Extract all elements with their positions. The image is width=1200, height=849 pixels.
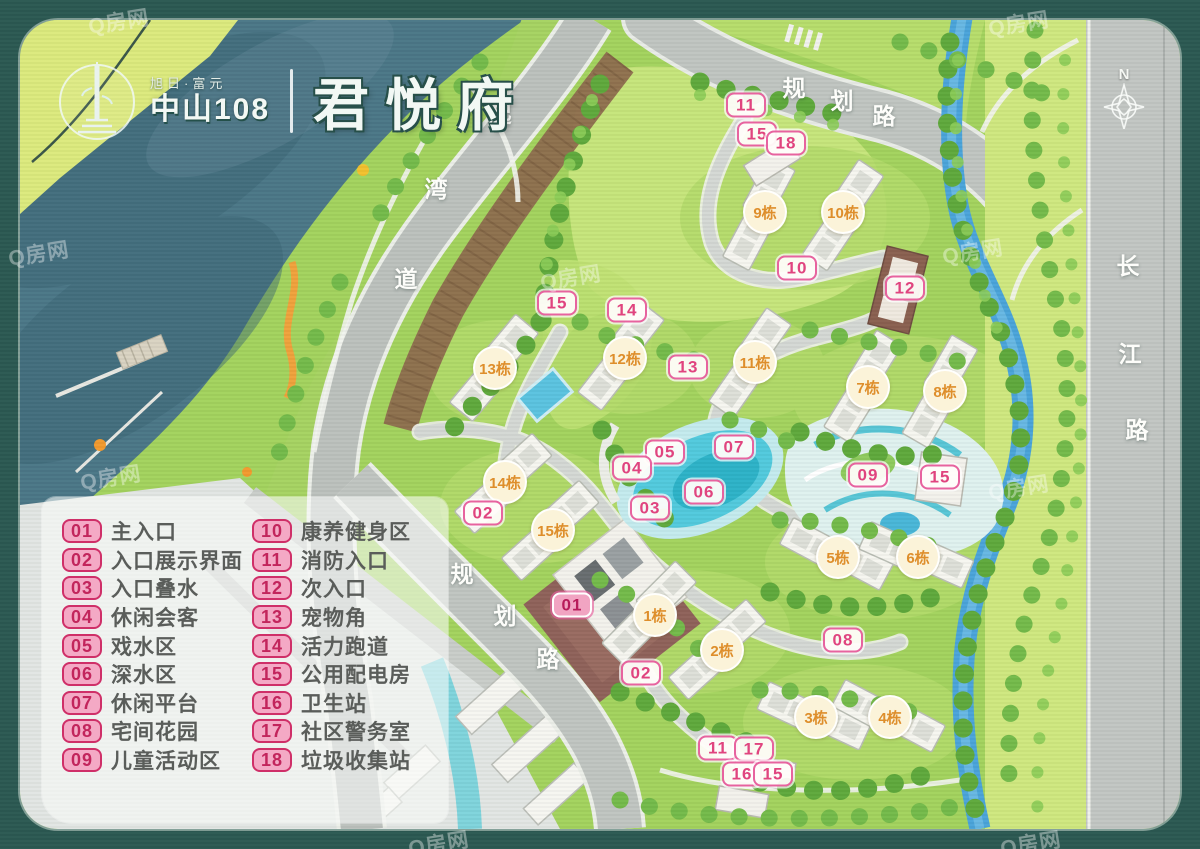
legend-number-badge: 04 [62,605,102,629]
legend-number-badge: 11 [252,548,292,572]
legend-label: 公用配电房 [301,659,411,689]
legend-number-badge: 01 [62,519,102,543]
map-marker-02[interactable]: 02 [621,661,661,686]
legend-item-01: 01主入口 [62,517,252,546]
road-label-起湾道: 道 [395,260,418,294]
building-label-3栋[interactable]: 3栋 [794,695,838,739]
legend-number-badge: 12 [252,576,292,600]
road-label-规划路(北): 划 [831,82,854,116]
map-marker-02[interactable]: 02 [463,501,503,526]
watermark: Q房网 [998,823,1063,849]
map-marker-10[interactable]: 10 [777,256,817,281]
legend-number-badge: 16 [252,691,292,715]
legend-label: 入口展示界面 [111,545,243,575]
legend-label: 康养健身区 [301,516,411,546]
building-label-12栋[interactable]: 12栋 [603,336,647,380]
legend-item-14: 14活力跑道 [252,631,442,660]
brand-emblem-icon [56,58,138,144]
map-marker-06[interactable]: 06 [684,480,724,505]
map-marker-11[interactable]: 11 [726,93,766,118]
legend-item-12: 12次入口 [252,574,442,603]
legend-number-badge: 10 [252,519,292,543]
building-label-2栋[interactable]: 2栋 [700,628,744,672]
legend-label: 戏水区 [111,631,177,661]
legend-item-15: 15公用配电房 [252,660,442,689]
building-label-6栋[interactable]: 6栋 [896,535,940,579]
legend-item-11: 11消防入口 [252,546,442,575]
road-label-长江路: 路 [1126,411,1149,445]
compass-icon [1099,83,1149,129]
watermark: Q房网 [78,457,143,496]
map-marker-01[interactable]: 01 [552,593,592,618]
legend-item-08: 08宅间花园 [62,717,252,746]
building-label-11栋[interactable]: 11栋 [733,340,777,384]
road-label-起湾道: 湾 [425,170,448,204]
legend-label: 次入口 [301,573,367,603]
project-name: 君悦府 [313,61,529,142]
map-marker-08[interactable]: 08 [823,628,863,653]
watermark: Q房网 [986,467,1051,506]
road-label-规划路(北): 路 [873,97,896,131]
legend-label: 卫生站 [301,688,367,718]
brand-logo: 旭日·富元 中山108 君悦府 [56,58,529,144]
legend-number-badge: 07 [62,691,102,715]
building-label-15栋[interactable]: 15栋 [531,508,575,552]
map-marker-11[interactable]: 11 [698,736,738,761]
legend-item-13: 13宠物角 [252,603,442,632]
legend-item-05: 05戏水区 [62,631,252,660]
building-label-7栋[interactable]: 7栋 [846,365,890,409]
watermark: Q房网 [538,257,603,296]
map-marker-15[interactable]: 15 [753,762,793,787]
legend-number-badge: 06 [62,662,102,686]
legend-label: 社区警务室 [301,716,411,746]
building-label-9栋[interactable]: 9栋 [743,190,787,234]
building-label-14栋[interactable]: 14栋 [483,460,527,504]
legend-label: 垃圾收集站 [301,745,411,775]
map-marker-09[interactable]: 09 [848,463,888,488]
map-marker-13[interactable]: 13 [668,355,708,380]
road-label-规划路(西): 划 [494,597,517,631]
legend-number-badge: 17 [252,719,292,743]
legend-item-02: 02入口展示界面 [62,546,252,575]
road-label-规划路(北): 规 [783,69,806,103]
legend-label: 儿童活动区 [111,745,221,775]
building-label-13栋[interactable]: 13栋 [473,346,517,390]
legend-item-06: 06深水区 [62,660,252,689]
legend-number-badge: 02 [62,548,102,572]
north-indicator: N [1099,66,1149,134]
legend-number-badge: 15 [252,662,292,686]
site-plan-screenshot: 旭日·富元 中山108 君悦府 N 01主入口02入口展示界面03入口叠水04休… [0,0,1200,849]
legend-item-10: 10康养健身区 [252,517,442,546]
map-marker-07[interactable]: 07 [714,435,754,460]
legend-item-09: 09儿童活动区 [62,746,252,775]
legend-label: 活力跑道 [301,631,389,661]
legend-item-18: 18垃圾收集站 [252,746,442,775]
legend-number-badge: 09 [62,748,102,772]
legend-item-03: 03入口叠水 [62,574,252,603]
map-marker-12[interactable]: 12 [885,276,925,301]
legend-label: 入口叠水 [111,573,199,603]
map-overlay: 旭日·富元 中山108 君悦府 N 01主入口02入口展示界面03入口叠水04休… [0,0,1200,849]
map-marker-17[interactable]: 17 [734,737,774,762]
watermark: Q房网 [6,233,71,272]
building-label-1栋[interactable]: 1栋 [633,593,677,637]
building-label-8栋[interactable]: 8栋 [923,369,967,413]
road-label-长江路: 长 [1117,247,1140,281]
legend-number-badge: 05 [62,634,102,658]
legend-number-badge: 08 [62,719,102,743]
north-label: N [1099,66,1149,83]
legend-item-07: 07休闲平台 [62,689,252,718]
legend-panel: 01主入口02入口展示界面03入口叠水04休闲会客05戏水区06深水区07休闲平… [42,497,448,823]
legend-column-2: 10康养健身区11消防入口12次入口13宠物角14活力跑道15公用配电房16卫生… [252,517,442,813]
watermark: Q房网 [986,3,1051,42]
road-label-长江路: 江 [1119,335,1142,369]
brand-title: 中山108 [150,95,270,125]
watermark: Q房网 [940,231,1005,270]
legend-item-16: 16卫生站 [252,689,442,718]
brand-subtitle: 旭日·富元 [150,77,270,90]
legend-number-badge: 13 [252,605,292,629]
map-marker-14[interactable]: 14 [607,298,647,323]
legend-label: 休闲平台 [111,688,199,718]
legend-number-badge: 03 [62,576,102,600]
building-label-10栋[interactable]: 10栋 [821,190,865,234]
legend-item-04: 04休闲会客 [62,603,252,632]
map-marker-18[interactable]: 18 [766,131,806,156]
legend-item-17: 17社区警务室 [252,717,442,746]
road-label-规划路(西): 规 [451,555,474,589]
logo-divider [290,69,293,133]
legend-number-badge: 18 [252,748,292,772]
map-marker-15[interactable]: 15 [920,465,960,490]
legend-label: 主入口 [111,516,177,546]
watermark: Q房网 [86,1,151,40]
legend-label: 深水区 [111,659,177,689]
legend-label: 宠物角 [301,602,367,632]
building-label-5栋[interactable]: 5栋 [816,535,860,579]
legend-number-badge: 14 [252,634,292,658]
legend-label: 宅间花园 [111,716,199,746]
map-marker-03[interactable]: 03 [630,496,670,521]
legend-column-1: 01主入口02入口展示界面03入口叠水04休闲会客05戏水区06深水区07休闲平… [62,517,252,813]
watermark: Q房网 [406,823,471,849]
building-label-4栋[interactable]: 4栋 [868,695,912,739]
map-marker-04[interactable]: 04 [612,456,652,481]
legend-label: 消防入口 [301,545,389,575]
legend-label: 休闲会客 [111,602,199,632]
road-label-规划路(西): 路 [537,640,560,674]
